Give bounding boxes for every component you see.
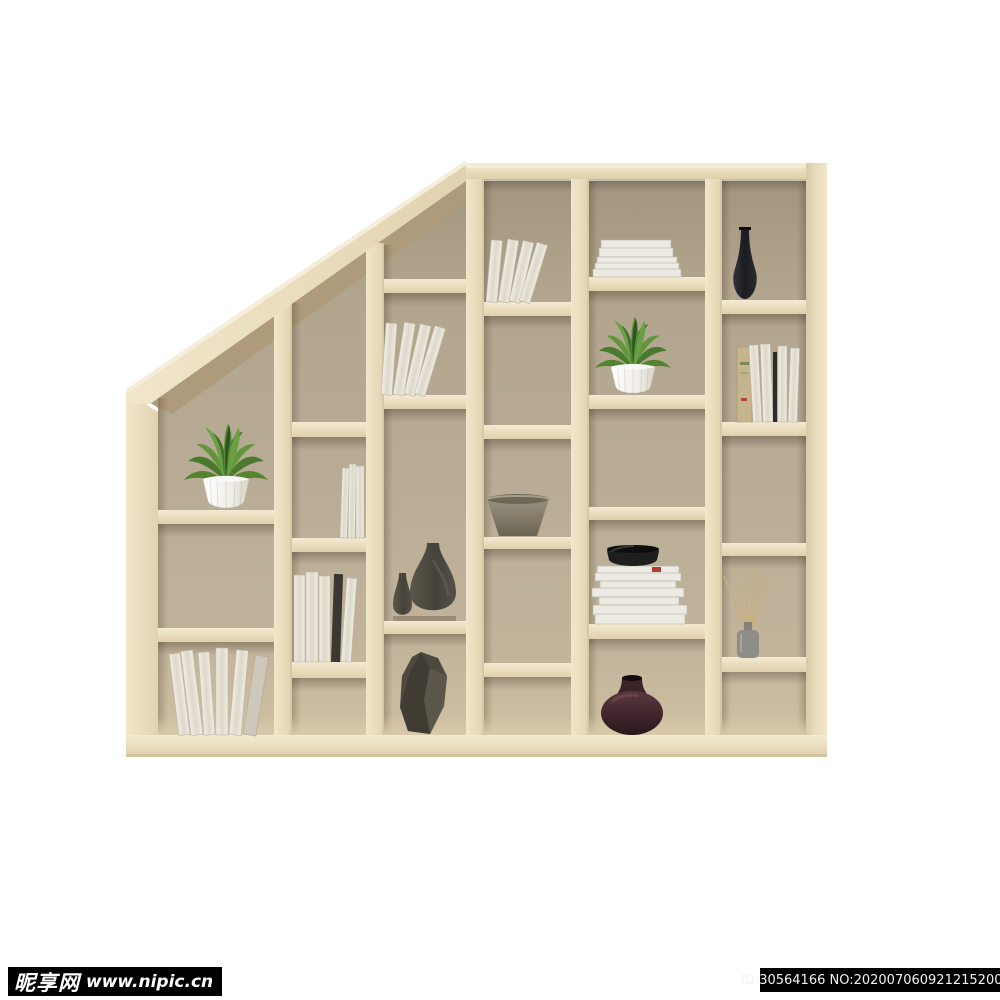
- watermark-left: 昵享网 www.nipic.cn: [8, 967, 222, 996]
- standing-books: [294, 572, 357, 662]
- thin-books: [340, 464, 364, 538]
- watermark-site-url: www.nipic.cn: [86, 972, 213, 992]
- book-stack: [593, 240, 681, 277]
- black-bowl: [607, 545, 659, 566]
- watermark-right: ID:30564166 NO:20200706092121520081: [760, 968, 1000, 992]
- bookshelf-render: [0, 0, 1000, 1000]
- product-photo: 昵享网 www.nipic.cn ID:30564166 NO:20200706…: [0, 0, 1000, 1000]
- watermark-site-name: 昵享网: [14, 967, 80, 997]
- books-tan-spine: [737, 344, 800, 422]
- watermark-id-text: ID:30564166 NO:20200706092121520081: [741, 973, 1000, 988]
